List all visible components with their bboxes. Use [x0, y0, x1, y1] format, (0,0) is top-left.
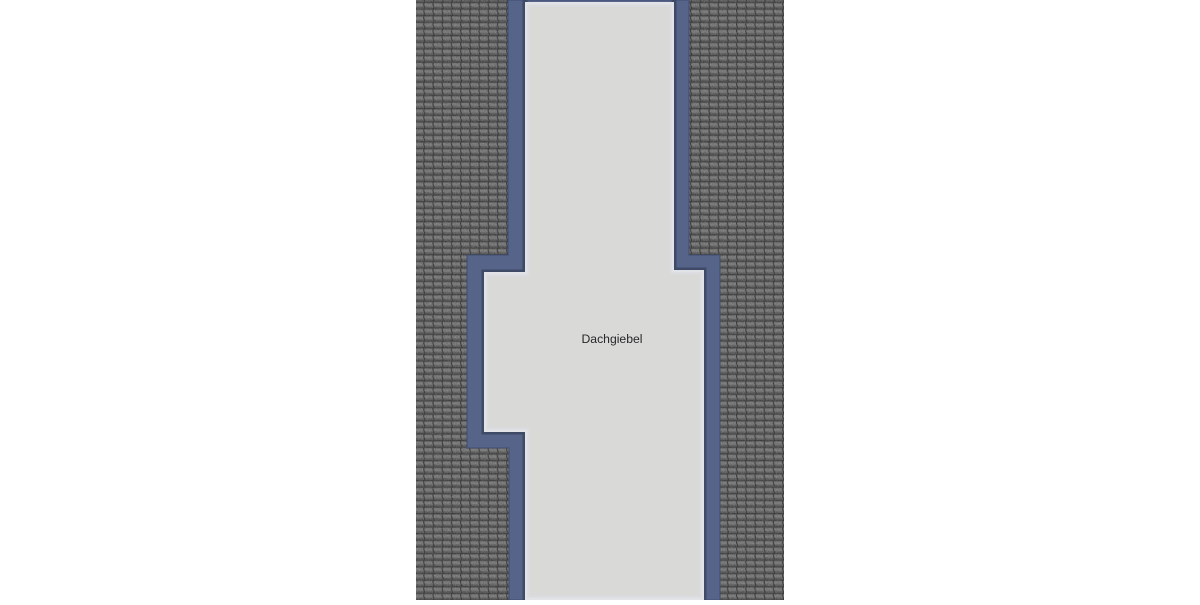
svg-text:Dachgiebel: Dachgiebel	[582, 332, 643, 346]
